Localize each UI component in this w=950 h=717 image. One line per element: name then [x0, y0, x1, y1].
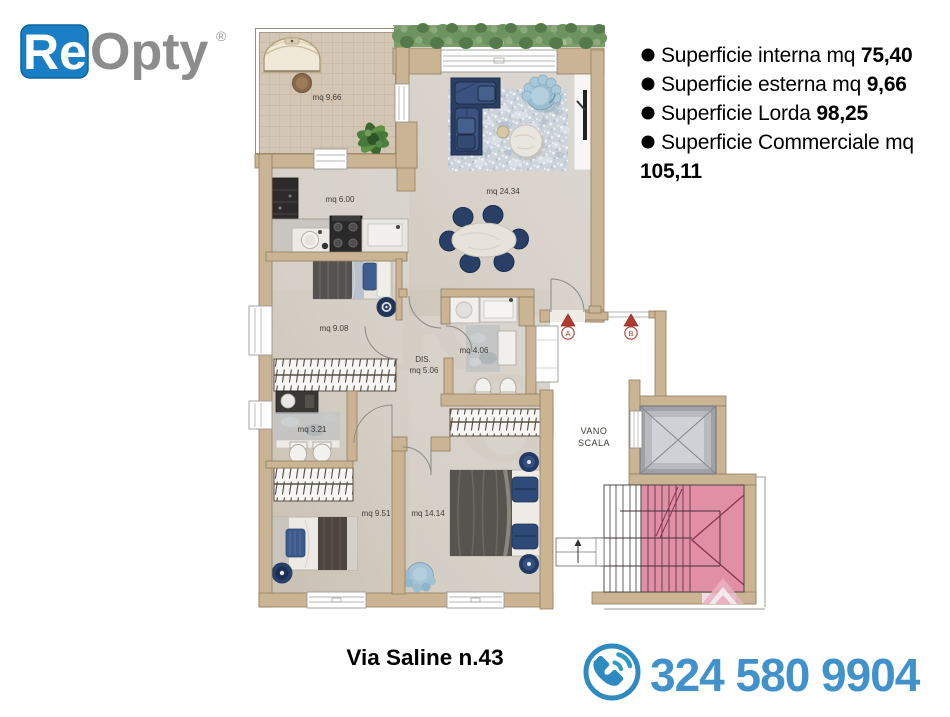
svg-text:mq 4.06: mq 4.06: [460, 346, 489, 355]
svg-text:mq 3.21: mq 3.21: [298, 425, 327, 434]
svg-text:Re: Re: [23, 24, 87, 80]
svg-text:Superficie Commerciale mq: Superficie Commerciale mq: [661, 131, 914, 154]
svg-text:Superficie esterna mq 9,66: Superficie esterna mq 9,66: [661, 73, 907, 96]
svg-text:324 580 9904: 324 580 9904: [650, 649, 921, 701]
svg-text:®: ®: [216, 28, 227, 44]
svg-text:mq 6.00: mq 6.00: [326, 195, 355, 204]
svg-text:Via Saline n.43: Via Saline n.43: [346, 645, 503, 670]
svg-text:VANO: VANO: [581, 426, 608, 436]
svg-text:mq 5.06: mq 5.06: [410, 366, 439, 375]
svg-text:mq 9.08: mq 9.08: [320, 324, 349, 333]
svg-text:mq 24.34: mq 24.34: [486, 187, 520, 196]
svg-text:Opty: Opty: [90, 23, 209, 81]
svg-text:mq 14.14: mq 14.14: [411, 509, 445, 518]
svg-text:mq 9.51: mq 9.51: [362, 509, 391, 518]
svg-text:DIS.: DIS.: [415, 355, 431, 364]
svg-text:105,11: 105,11: [640, 160, 702, 183]
svg-text:B: B: [628, 329, 633, 338]
svg-text:Superficie Lorda 98,25: Superficie Lorda 98,25: [661, 102, 868, 125]
svg-text:A: A: [565, 329, 570, 338]
svg-text:mq 9,66: mq 9,66: [313, 93, 342, 102]
svg-text:SCALA: SCALA: [578, 438, 610, 448]
svg-text:Superficie interna mq 75,40: Superficie interna mq 75,40: [661, 44, 912, 67]
